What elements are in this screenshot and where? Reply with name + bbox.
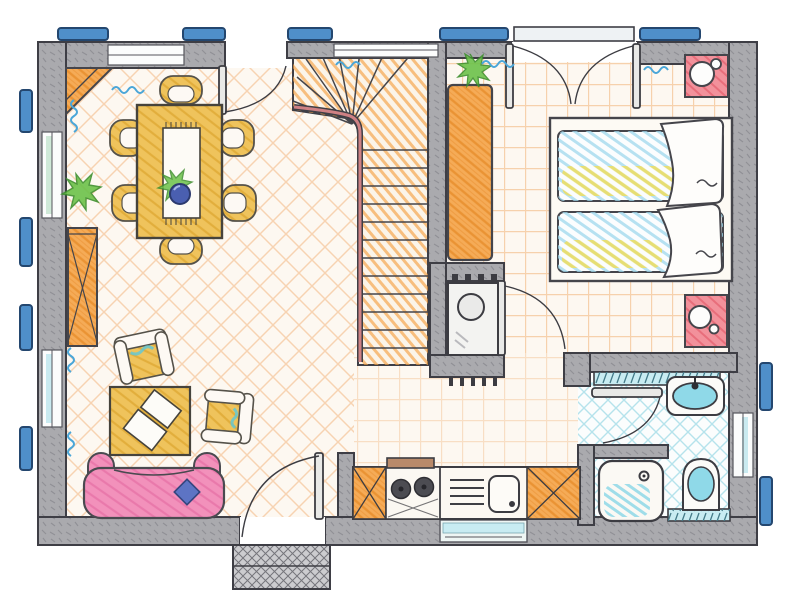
shutter-bar-right-1 xyxy=(760,363,772,410)
shutter-bar-left-4 xyxy=(20,427,32,470)
bed-2 xyxy=(558,204,723,277)
nightstand-2-knob xyxy=(710,325,719,334)
hallway-items xyxy=(448,54,498,386)
bathroom-sink xyxy=(667,377,724,415)
nightstand-2-bowl xyxy=(689,306,711,328)
shutter-bar-top-1 xyxy=(58,28,108,40)
dining-chair-right-1 xyxy=(220,120,254,156)
window-top-stairs xyxy=(334,44,438,57)
nightstand-1 xyxy=(685,55,728,97)
window-kitchen xyxy=(440,520,527,542)
dining-chair-right-2 xyxy=(222,185,256,221)
window-left-upper xyxy=(42,132,62,218)
shutter-bar-top-4 xyxy=(440,28,508,40)
runner-rug xyxy=(448,85,492,260)
bed-2-blanket-yellow xyxy=(562,240,662,268)
wall-kitchen-stub xyxy=(338,453,354,517)
shower xyxy=(599,461,663,521)
shutter-bar-top-2 xyxy=(183,28,225,40)
french-door-sill xyxy=(514,27,634,41)
shower-water xyxy=(604,484,650,517)
armchair-2 xyxy=(201,389,254,445)
boiler-door xyxy=(458,294,484,320)
toilet xyxy=(683,459,719,510)
nightstand-2 xyxy=(685,295,727,347)
window-top-living xyxy=(108,45,184,65)
shutter-bar-left-2 xyxy=(20,218,32,266)
wall-bottom-1 xyxy=(38,517,240,545)
floor-plan-drawing xyxy=(0,0,800,600)
shutter-bar-left-3 xyxy=(20,305,32,350)
kitchen-cabinet-left xyxy=(353,467,386,519)
coffee-table xyxy=(110,387,190,455)
dining-chair-bottom xyxy=(160,236,202,264)
entrance-opening xyxy=(240,517,325,545)
window-right-bathroom xyxy=(733,413,753,477)
range-hood xyxy=(387,458,434,468)
bookshelf xyxy=(68,228,97,346)
wall-stairwell xyxy=(428,42,446,265)
toilet-bowl xyxy=(688,467,714,501)
sink-drain xyxy=(509,501,515,507)
shutter-bar-right-2 xyxy=(760,477,772,525)
kitchen xyxy=(353,458,580,519)
dining-chair-top xyxy=(160,76,202,104)
floor-plan-canvas xyxy=(0,0,800,600)
sink-faucet xyxy=(692,383,699,390)
stove xyxy=(386,458,440,519)
nightstand-1-knob xyxy=(711,59,721,69)
shutter-bar-top-5 xyxy=(640,28,700,40)
wall-left xyxy=(38,42,66,545)
wall-bathroom-stub xyxy=(564,353,590,386)
bed-1-blanket-yellow xyxy=(562,166,682,196)
sink-bowl xyxy=(489,476,519,512)
shutter-bar-left-1 xyxy=(20,90,32,132)
kitchen-cabinet-right xyxy=(527,467,580,519)
bed-1 xyxy=(558,119,723,206)
utility-boiler xyxy=(448,283,498,355)
window-left-lower xyxy=(42,350,62,427)
porch-mat xyxy=(233,545,330,589)
shutter-bar-top-3 xyxy=(288,28,332,40)
shower-drain-dot xyxy=(643,475,646,478)
wall-closet-bottom xyxy=(430,355,504,377)
